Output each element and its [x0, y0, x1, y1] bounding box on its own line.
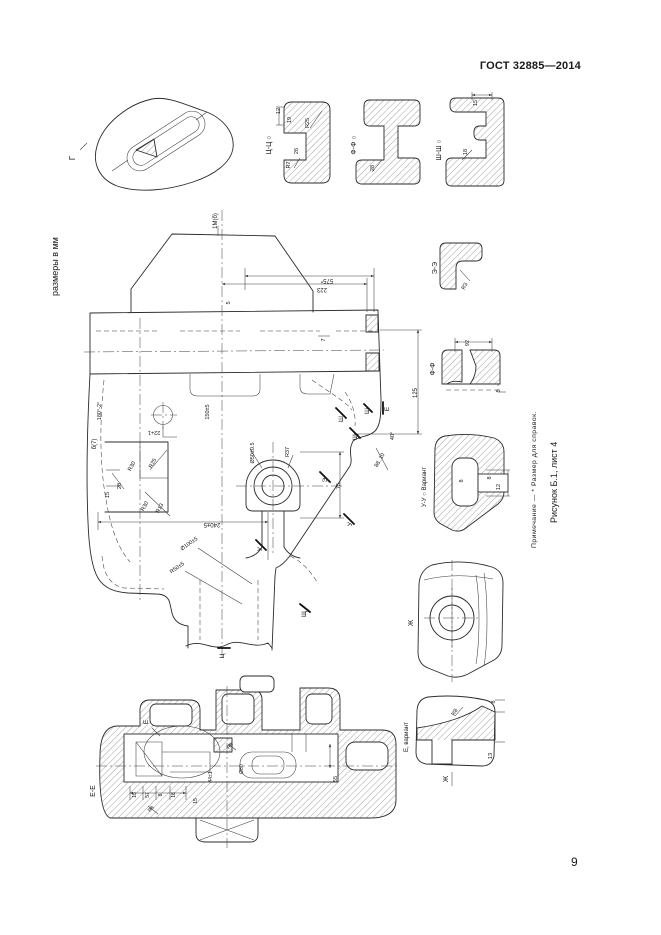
dimension-label: 18 [463, 149, 469, 155]
dimension-label: 13 [488, 753, 494, 759]
dimension-label: Ш-Ш ○ [436, 139, 443, 160]
dimension-label: 5 [226, 301, 232, 304]
section-view-EE [96, 676, 400, 848]
dimension-label: 8 [158, 793, 164, 796]
dimension-label: 55 [333, 776, 339, 782]
dimension-label: R25 [148, 458, 158, 470]
dimension-label: Щ [352, 434, 359, 440]
dimension-label: 57 [145, 792, 151, 798]
dimension-label: Е [384, 406, 391, 411]
dimension-label: 125 [413, 387, 419, 398]
dimension-label: Э-Э [432, 262, 439, 274]
dimension-label: 223 [316, 286, 327, 292]
dimension-label: 1М(б) [213, 213, 219, 229]
figure-canvas: ГЦ-Ц ○1219R2526R7Ф-Ф ○28Ш-Ш ○15181М(б)57… [0, 0, 661, 935]
section-view-uu [434, 434, 510, 531]
dimension-label: R30 [127, 461, 137, 473]
dimension-label: б(7) [92, 439, 98, 450]
dimension-label: 8 [487, 476, 493, 479]
dimension-label: 240±5 [203, 521, 220, 527]
dimension-label: 5 [496, 389, 502, 392]
document-page: ГОСТ 32885—2014 размеры в мм Примечание … [0, 0, 661, 935]
dimension-label: 19 [287, 117, 293, 123]
dimension-label: 44±1 [208, 771, 214, 782]
dimension-label: Ø100±5 [180, 536, 199, 552]
dimension-label: R8 [451, 708, 460, 717]
dimension-label: 28 [117, 483, 123, 489]
dimension-label: 15 [193, 798, 199, 804]
dimension-label: 12 [276, 108, 282, 114]
section-view-ff-top [356, 100, 420, 184]
dimension-label: Ø80 [239, 764, 245, 774]
dimension-label: 150±5 [205, 404, 211, 419]
dimension-label: Ф-Ф ○ [351, 135, 358, 154]
dimension-label: 26 [294, 148, 300, 154]
dimension-label: 575* [320, 277, 333, 283]
dimension-label: 28 [370, 165, 376, 171]
main-view [84, 210, 422, 660]
dimension-label: Ж [443, 775, 450, 782]
section-view-ee-small [440, 243, 482, 289]
dimension-label: R3 [461, 282, 470, 291]
dimension-label: R50±5 [169, 561, 186, 575]
dimension-label: 92 [465, 340, 471, 346]
dimension-label: R13 [155, 503, 165, 515]
dimension-label: 8 [459, 479, 465, 482]
dimension-label: 15 [132, 792, 138, 798]
dimension-label: R37 [285, 447, 291, 457]
dimension-label: 18 [171, 792, 177, 798]
detail-view-g [80, 98, 233, 190]
dimension-label: 180°-2° [97, 402, 103, 420]
dimension-label: 15 [105, 492, 111, 498]
dimension-label: R30 [140, 501, 150, 513]
dimension-label: 88..10 [374, 452, 387, 468]
dimension-label: 22+1 [148, 429, 160, 435]
section-view-cc [276, 102, 330, 183]
dimension-label: R25 [305, 118, 311, 128]
dimension-label: 15 [473, 100, 479, 106]
dimension-label: Г [68, 155, 77, 160]
dimension-label: Ж [408, 619, 415, 626]
dimension-label: Э [322, 477, 329, 482]
section-view-ff2 [442, 338, 506, 392]
dimension-label: У-У ○ Вариант [422, 467, 428, 507]
dimension-label: Е, вариант [404, 722, 410, 752]
dimension-label: Ф-Ф [430, 363, 437, 376]
dimension-label: Ц [219, 653, 226, 658]
dimension-label: R7 [286, 161, 292, 168]
dimension-label: Ш [338, 416, 345, 422]
dimension-label: 75 [336, 483, 342, 489]
dimension-label: Е [143, 719, 150, 724]
dimension-label: 8 [491, 700, 497, 703]
dimension-label: 7 [321, 338, 327, 341]
dimension-label: Щ [301, 611, 308, 617]
dimension-label: Ø50±0.5 [250, 442, 256, 463]
dimension-label: 40° [390, 432, 396, 440]
dimension-label: Ц-Ц ○ [266, 136, 273, 155]
detail-e-variant [416, 696, 505, 786]
dimension-label: Ш [364, 408, 371, 414]
dimension-label: 12 [496, 484, 502, 490]
view-zh [418, 560, 503, 682]
dimension-label: Е-Е [90, 785, 97, 797]
